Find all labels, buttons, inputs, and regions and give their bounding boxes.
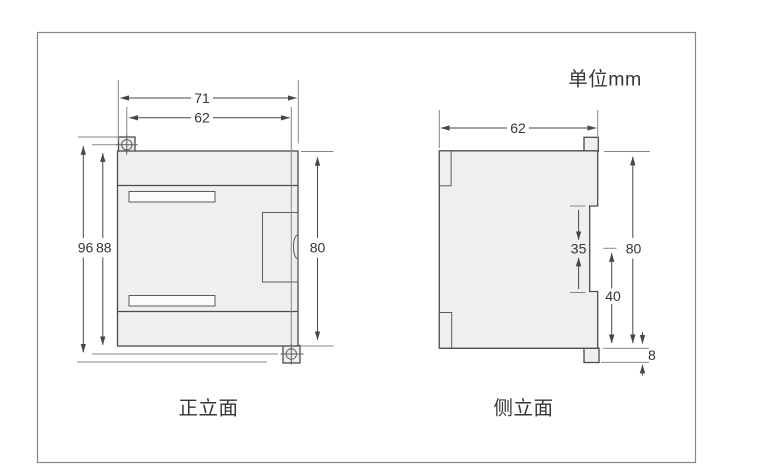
dim-body-height: 88	[96, 153, 112, 344]
dim-label-96: 96	[78, 239, 94, 255]
dim-label-80-side: 80	[626, 240, 642, 256]
front-view-body	[118, 151, 299, 346]
front-slot-lower	[129, 296, 215, 307]
dimension-drawing-page: 单位mm	[0, 0, 768, 473]
front-view: 71 62 96 88 80 正立面	[77, 80, 334, 420]
dim-lower-section: 40	[605, 253, 621, 343]
front-view-caption: 正立面	[178, 398, 238, 420]
dim-label-35: 35	[571, 241, 587, 257]
front-slot-upper	[129, 192, 215, 203]
dim-label-80-front: 80	[310, 239, 326, 255]
dim-label-62-front: 62	[194, 110, 210, 126]
dim-label-88: 88	[96, 239, 112, 255]
dim-overall-height: 96	[78, 146, 94, 352]
side-view: 62 35 80 40 8 侧立面	[439, 110, 656, 420]
dimension-diagram: 单位mm	[0, 0, 768, 473]
unit-label: 单位mm	[568, 69, 642, 91]
dim-label-8: 8	[648, 347, 656, 363]
dim-label-62-side: 62	[510, 120, 526, 136]
side-clip-bottom	[584, 348, 599, 363]
side-view-caption: 侧立面	[493, 398, 553, 420]
dim-overall-width: 71	[121, 90, 297, 106]
dim-mounting-width: 62	[130, 110, 290, 126]
dim-clip-height: 8	[643, 332, 657, 376]
dim-label-71: 71	[194, 90, 210, 106]
dim-label-40: 40	[605, 288, 621, 304]
dim-depth: 62	[441, 120, 596, 136]
dim-right-height-side: 80	[626, 157, 642, 343]
dim-right-height-front: 80	[310, 157, 326, 340]
side-clip-top	[584, 137, 598, 151]
